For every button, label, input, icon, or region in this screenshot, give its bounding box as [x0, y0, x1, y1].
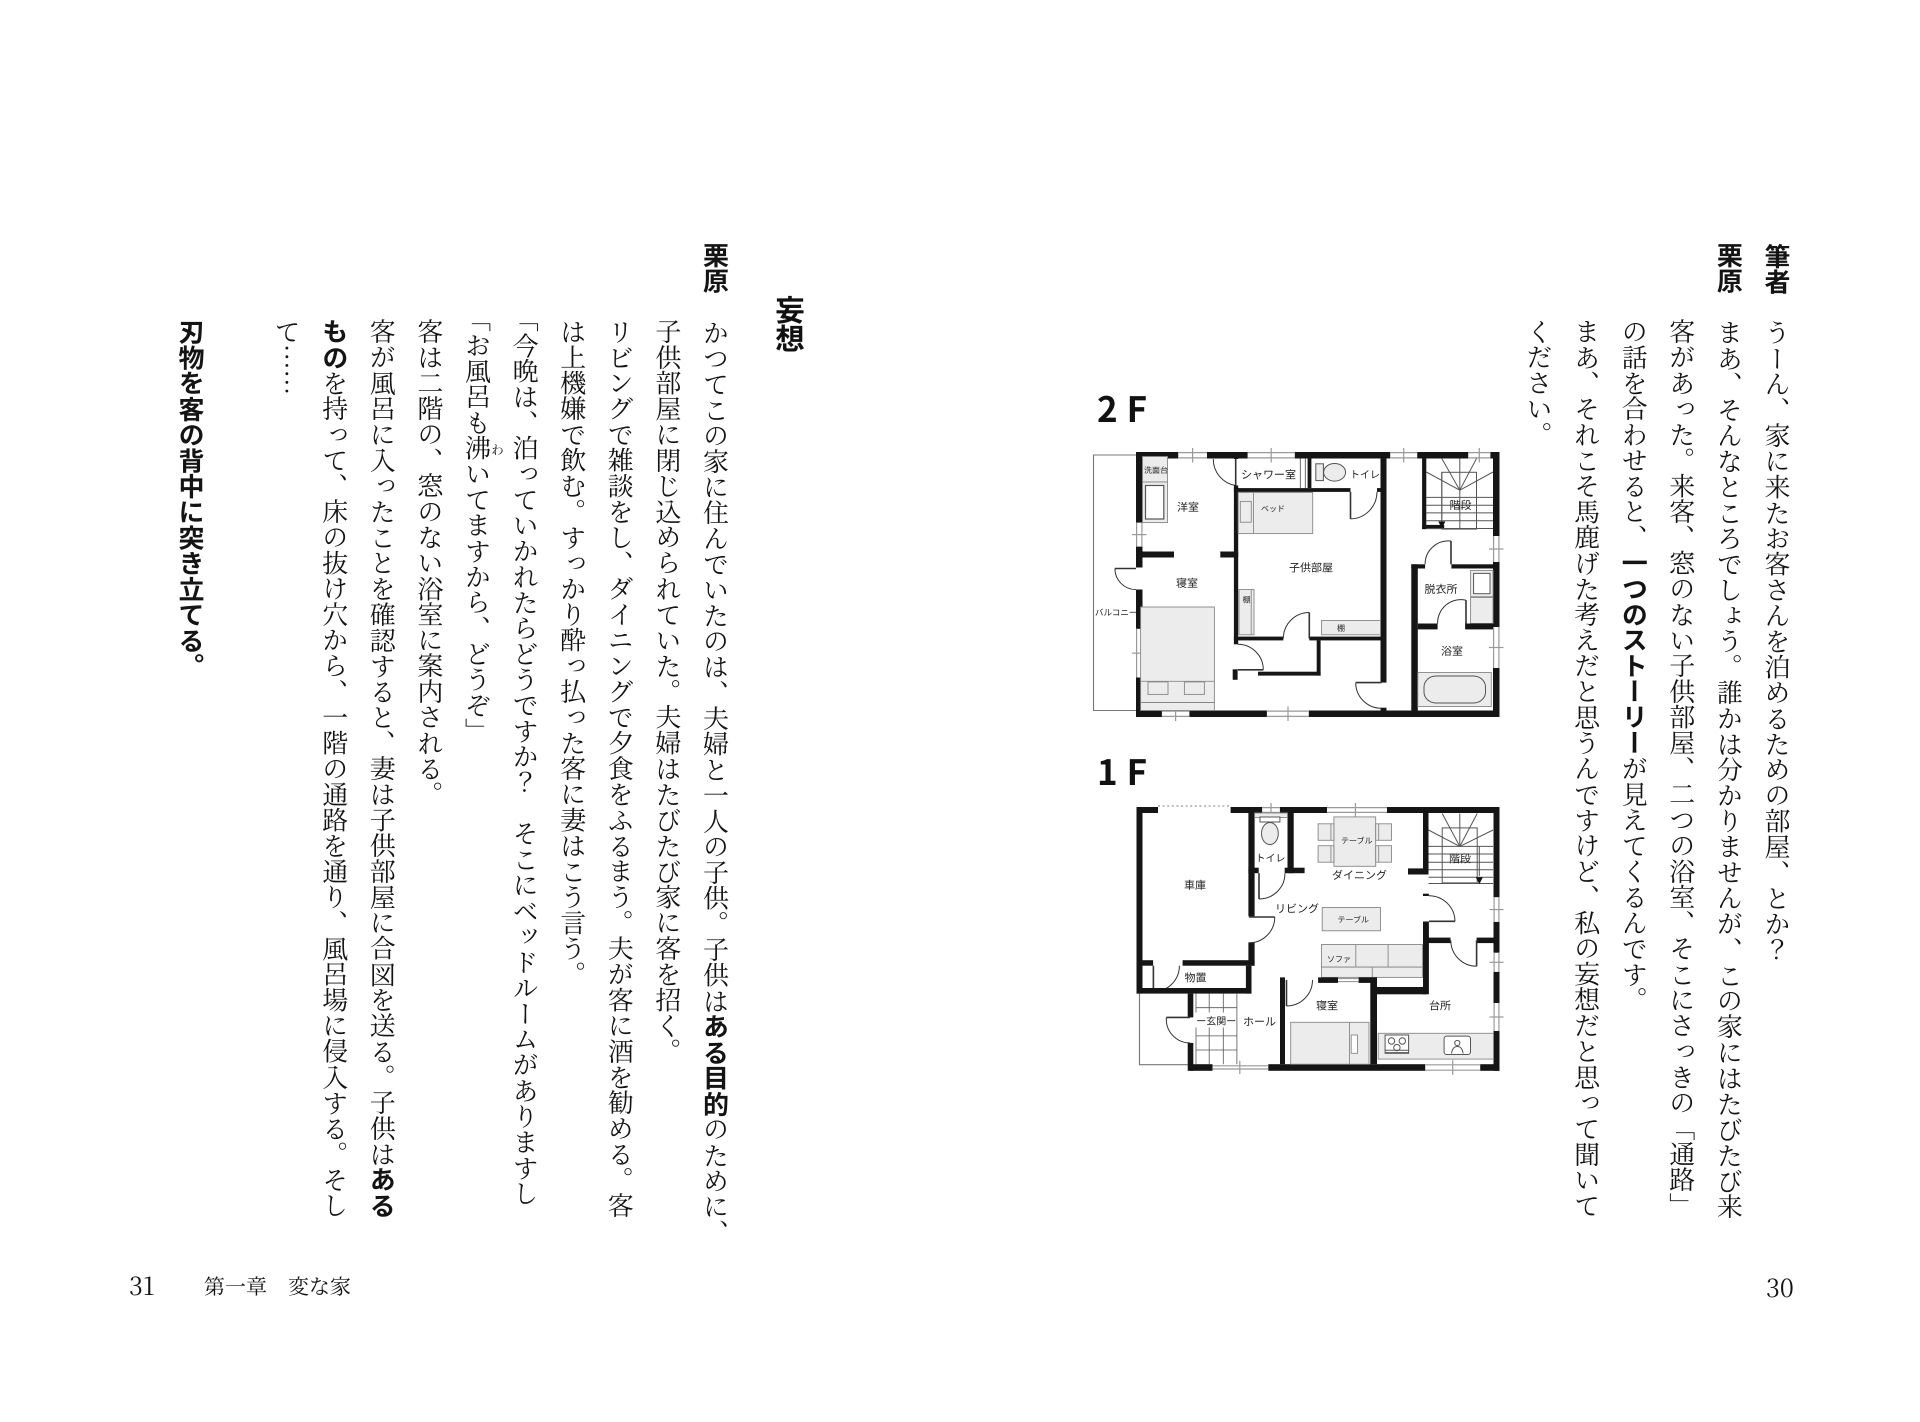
svg-text:階段: 階段	[1450, 497, 1472, 513]
svg-text:寝室: 寝室	[1176, 575, 1198, 591]
svg-text:ホール: ホール	[1243, 1014, 1276, 1030]
svg-text:洋室: 洋室	[1177, 499, 1199, 515]
svg-text:台所: 台所	[1429, 998, 1451, 1014]
svg-text:ソファ: ソファ	[1327, 954, 1351, 965]
svg-text:子供部屋: 子供部屋	[1289, 560, 1333, 576]
svg-text:階段: 階段	[1449, 851, 1471, 867]
svg-text:物置: 物置	[1185, 970, 1207, 986]
svg-text:トイレ: トイレ	[1256, 850, 1286, 865]
svg-text:寝室: 寝室	[1316, 998, 1338, 1014]
svg-text:ダイニング: ダイニング	[1332, 867, 1387, 883]
svg-text:リビング: リビング	[1275, 901, 1319, 917]
svg-text:脱衣所: 脱衣所	[1425, 581, 1458, 597]
svg-text:バルコニー: バルコニー	[1095, 607, 1137, 619]
svg-text:テーブル: テーブル	[1338, 915, 1370, 926]
svg-text:棚: 棚	[1243, 595, 1251, 606]
svg-text:浴室: 浴室	[1441, 643, 1463, 659]
svg-text:シャワー室: シャワー室	[1241, 467, 1296, 483]
svg-text:棚: 棚	[1337, 623, 1345, 634]
svg-text:車庫: 車庫	[1184, 877, 1206, 893]
svg-text:ベッド: ベッド	[1261, 504, 1285, 515]
svg-text:ー玄関ー: ー玄関ー	[1196, 1013, 1236, 1028]
svg-text:トイレ: トイレ	[1350, 466, 1380, 481]
svg-text:テーブル: テーブル	[1341, 836, 1373, 847]
svg-text:洗面台: 洗面台	[1144, 465, 1168, 476]
